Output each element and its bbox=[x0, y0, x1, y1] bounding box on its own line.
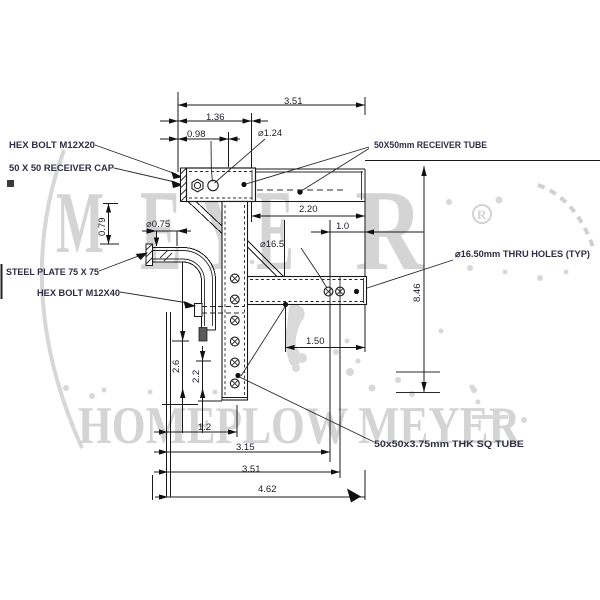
svg-text:8.46: 8.46 bbox=[412, 284, 423, 303]
svg-text:3.51: 3.51 bbox=[242, 464, 261, 475]
svg-text:4.62: 4.62 bbox=[258, 484, 277, 495]
svg-text:0.98: 0.98 bbox=[187, 129, 206, 140]
svg-text:50x50x3.75mm THK SQ TUBE: 50x50x3.75mm THK SQ TUBE bbox=[374, 439, 524, 450]
svg-text:HEX BOLT M12X40: HEX BOLT M12X40 bbox=[37, 288, 120, 299]
svg-text:1.50: 1.50 bbox=[306, 336, 325, 347]
svg-text:1.2: 1.2 bbox=[198, 422, 211, 433]
svg-text:⌀0.75: ⌀0.75 bbox=[146, 219, 170, 230]
svg-text:1.0: 1.0 bbox=[336, 221, 349, 232]
svg-text:E: E bbox=[256, 167, 294, 295]
svg-text:50 X 50 RECEIVER CAP: 50 X 50 RECEIVER CAP bbox=[9, 163, 115, 174]
svg-text:1.36: 1.36 bbox=[206, 112, 225, 123]
svg-text:⌀16.5: ⌀16.5 bbox=[260, 239, 284, 250]
svg-text:0.79: 0.79 bbox=[97, 218, 108, 237]
svg-text:2.20: 2.20 bbox=[299, 204, 318, 215]
svg-text:STEEL PLATE 75 X 75: STEEL PLATE 75 X 75 bbox=[6, 267, 100, 278]
svg-text:3.15: 3.15 bbox=[236, 442, 255, 453]
svg-text:⌀1.24: ⌀1.24 bbox=[258, 128, 282, 139]
svg-text:3.51: 3.51 bbox=[284, 96, 303, 107]
svg-text:50X50mm RECEIVER TUBE: 50X50mm RECEIVER TUBE bbox=[374, 140, 487, 151]
svg-text:2.6: 2.6 bbox=[171, 360, 182, 373]
svg-text:R: R bbox=[477, 207, 487, 222]
svg-text:⌀16.50mm THRU HOLES (TYP): ⌀16.50mm THRU HOLES (TYP) bbox=[455, 249, 590, 260]
svg-text:2.2: 2.2 bbox=[191, 370, 202, 383]
svg-text:HEX BOLT M12X20: HEX BOLT M12X20 bbox=[9, 140, 95, 151]
